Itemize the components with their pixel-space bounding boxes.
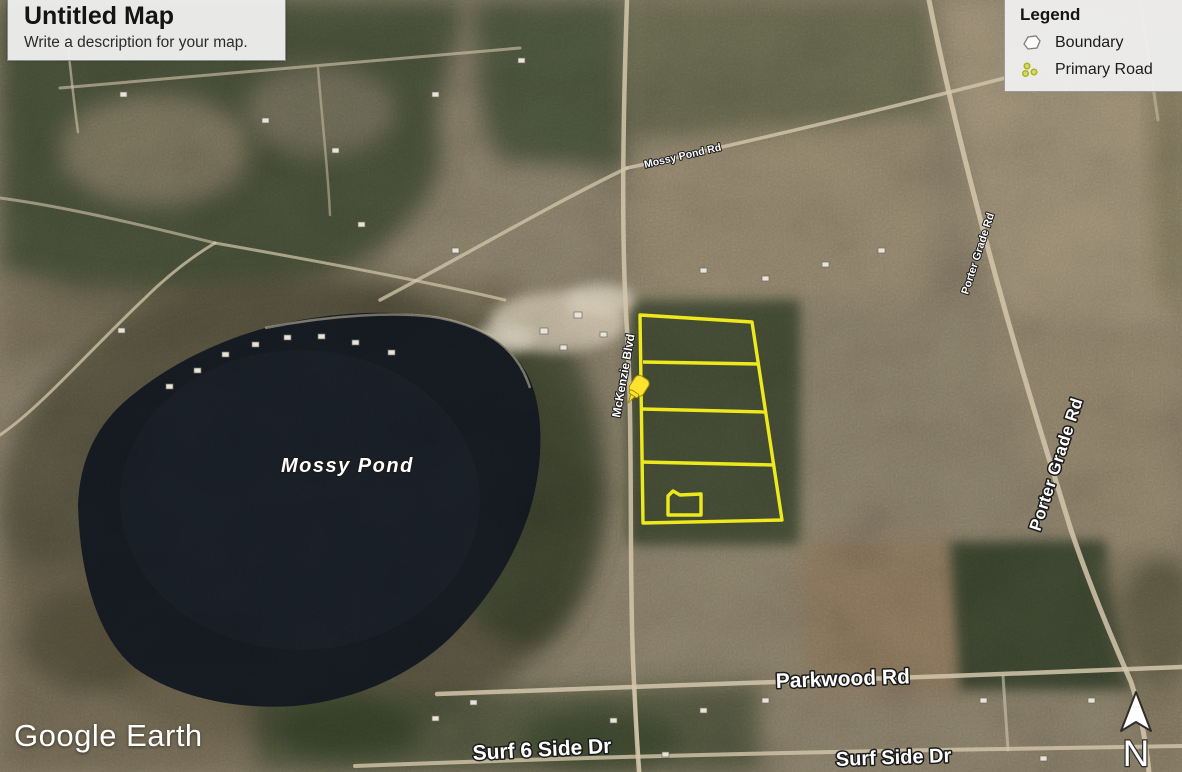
boundary-divider-1[interactable] xyxy=(643,362,759,364)
boundary-polygon-icon xyxy=(1020,34,1044,52)
google-earth-export-view: Mossy Pond Parkwood Rd Surf 6 Side Dr Su… xyxy=(0,0,1182,772)
terrain-noise-fine xyxy=(0,0,1182,772)
satellite-map-canvas[interactable]: Mossy Pond Parkwood Rd Surf 6 Side Dr Su… xyxy=(0,0,1182,772)
map-description: Write a description for your map. xyxy=(24,34,269,51)
north-arrow-glyph xyxy=(1121,692,1151,731)
legend-item-boundary: Boundary xyxy=(1020,34,1168,52)
legend-item-label: Primary Road xyxy=(1055,61,1153,79)
legend-panel: Legend Boundary Primary Road xyxy=(1004,0,1182,92)
legend-item-primary-road: Primary Road xyxy=(1020,61,1168,79)
label-mossy-pond: Mossy Pond xyxy=(281,455,414,477)
map-title-card: Untitled Map Write a description for you… xyxy=(7,0,286,61)
legend-item-label: Boundary xyxy=(1055,34,1124,52)
north-arrow: N xyxy=(1106,688,1170,772)
primary-road-icon xyxy=(1020,61,1044,79)
north-label: N xyxy=(1123,733,1150,772)
google-earth-logo: Google Earth xyxy=(14,718,203,754)
label-parkwood-rd: Parkwood Rd xyxy=(775,665,910,693)
label-surf-side-dr: Surf Side Dr xyxy=(835,745,951,771)
map-title: Untitled Map xyxy=(24,3,269,29)
legend-title: Legend xyxy=(1020,5,1168,25)
